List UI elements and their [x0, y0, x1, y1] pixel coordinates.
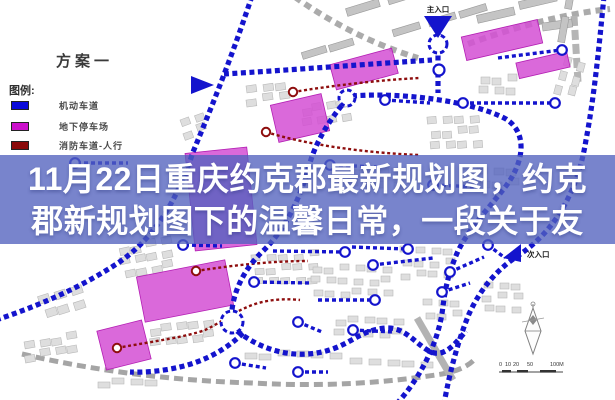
north-compass-icon: [522, 302, 544, 354]
legend-item-label: 地下停车场: [59, 120, 109, 133]
fire-lane-swatch: [11, 141, 29, 150]
legend-item-label: 消防车道-人行: [59, 139, 123, 152]
scale-tick: 0: [499, 362, 502, 368]
underground-parking-swatch: [11, 122, 29, 131]
triangle-right-icon: [191, 76, 214, 94]
main-entrance-label: 主入口: [427, 4, 450, 14]
legend-item-fire-lane: 消防车道-人行: [11, 140, 123, 150]
scale-tick: 50: [527, 362, 533, 368]
scale-tick: 20: [513, 362, 519, 368]
triangle-left-icon: [503, 244, 521, 262]
scale-end-label: 100M: [550, 362, 564, 368]
main-entrance-marker: 主入口: [424, 4, 452, 38]
west-entrance-marker: [191, 76, 214, 94]
banner-line-1: 11月22日重庆约克郡最新规划图，约克: [28, 158, 587, 200]
banner-line-2: 郡新规划图下的温馨日常，一段关于友: [31, 200, 584, 242]
legend-item-underground-parking: 地下停车场: [11, 121, 109, 131]
secondary-entrance-label: 次入口: [527, 249, 550, 259]
secondary-entrance-marker: 次入口: [503, 244, 550, 262]
scale-tick: 10: [505, 362, 511, 368]
legend-item-motor-road: 机动车道: [11, 100, 99, 110]
legend-item-label: 机动车道: [59, 99, 99, 112]
legend-heading: 图例:: [9, 82, 35, 98]
plan-title: 方案一: [56, 50, 113, 71]
triangle-down-icon: [424, 16, 452, 38]
site-plan-screenshot: 主入口 次入口 0 10 20 50 100M: [0, 0, 615, 400]
scale-bar: 0 10 20 50 100M: [499, 362, 564, 373]
motor-road-swatch: [11, 101, 29, 110]
title-banner: 11月22日重庆约克郡最新规划图，约克 郡新规划图下的温馨日常，一段关于友: [0, 155, 615, 244]
